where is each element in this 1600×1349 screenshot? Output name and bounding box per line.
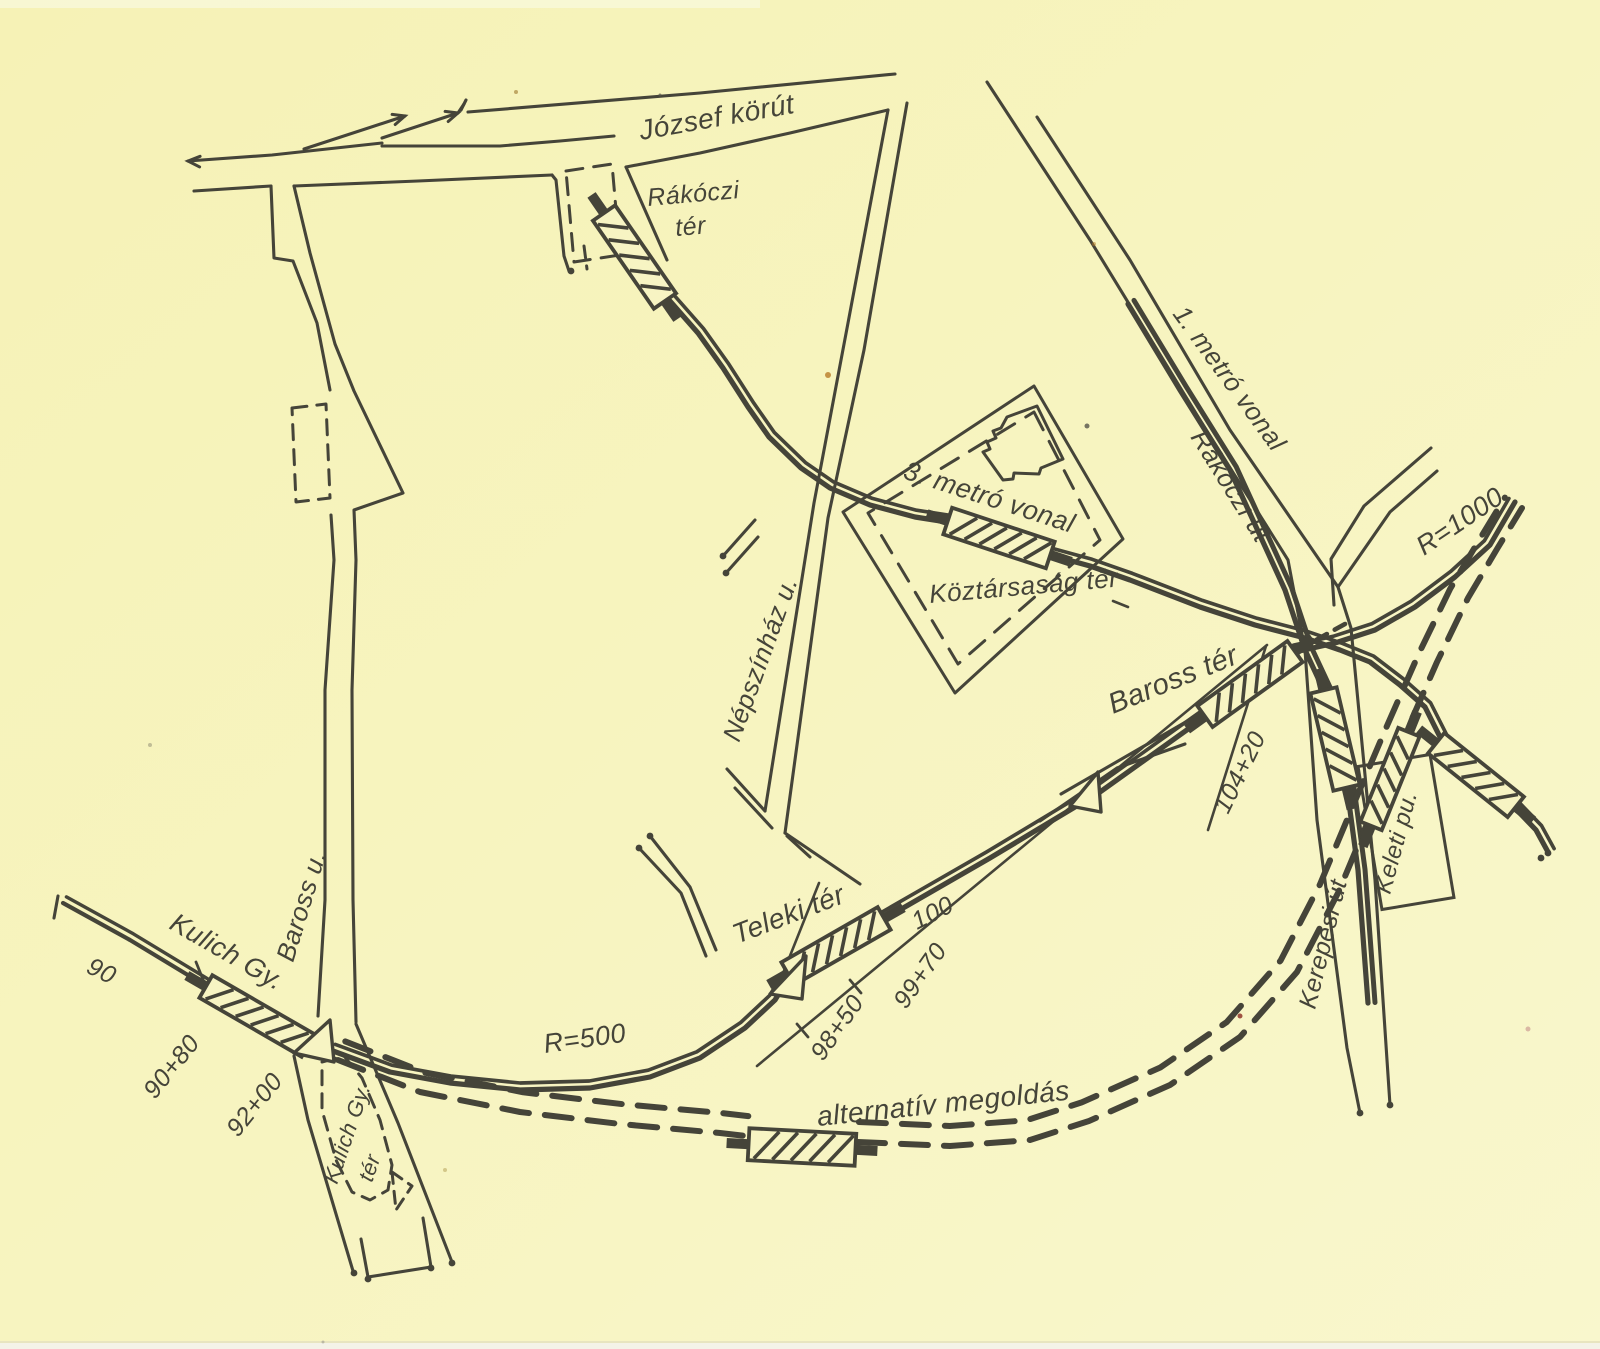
svg-text:tér: tér bbox=[674, 211, 708, 242]
